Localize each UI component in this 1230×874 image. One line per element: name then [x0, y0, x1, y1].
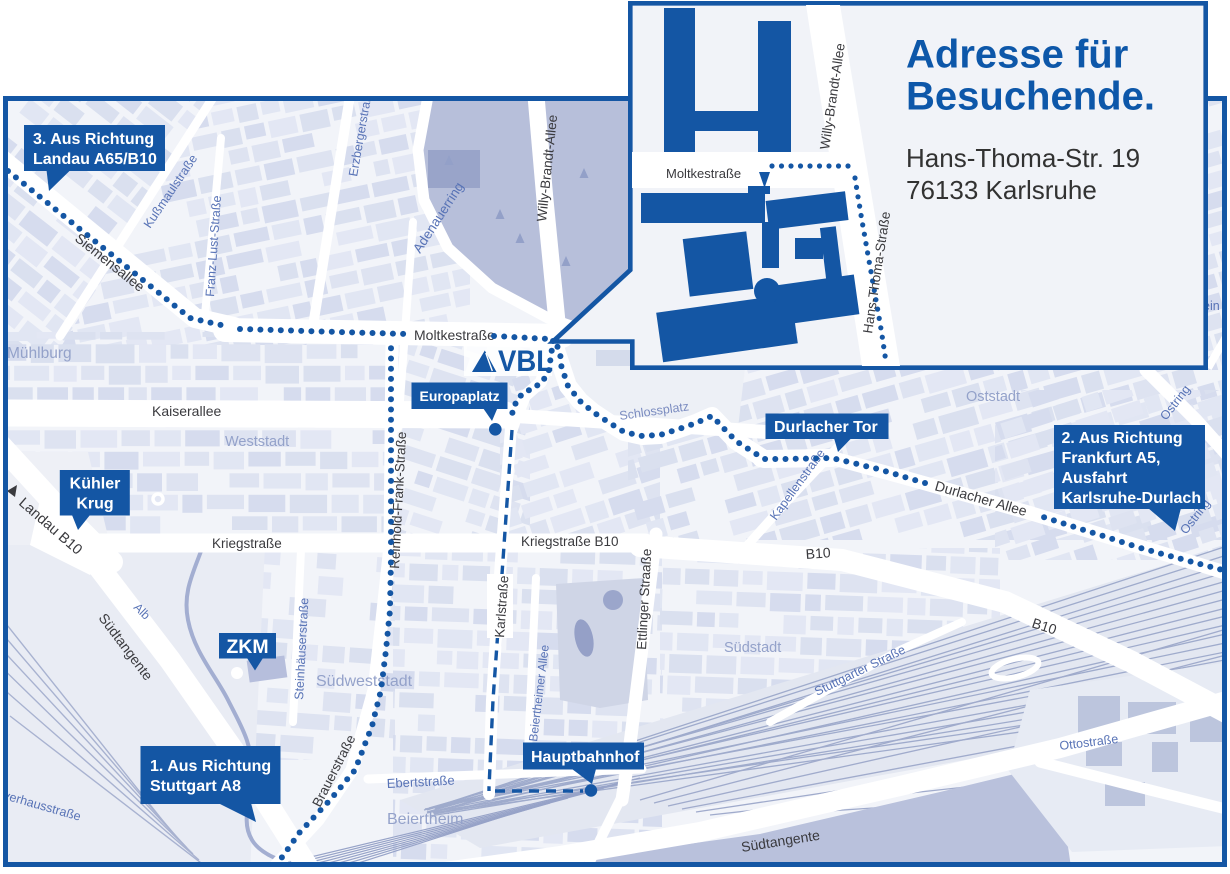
svg-text:Krug: Krug [76, 496, 113, 513]
svg-text:Beiertheim: Beiertheim [387, 811, 463, 828]
svg-text:Südstadt: Südstadt [724, 640, 781, 656]
svg-text:VBL: VBL [498, 345, 553, 378]
svg-text:Karlsruhe-Durlach: Karlsruhe-Durlach [1062, 490, 1202, 507]
svg-text:Mühlburg: Mühlburg [7, 345, 72, 362]
svg-text:Adresse für: Adresse für [906, 33, 1128, 77]
svg-text:Moltkestraße: Moltkestraße [666, 166, 741, 181]
svg-text:1. Aus Richtung: 1. Aus Richtung [150, 758, 271, 775]
svg-text:Landau A65/B10: Landau A65/B10 [33, 151, 157, 168]
svg-text:Stuttgart A8: Stuttgart A8 [150, 778, 241, 795]
svg-text:Moltkestraße: Moltkestraße [414, 327, 495, 343]
svg-text:Frankfurt A5,: Frankfurt A5, [1062, 450, 1161, 467]
svg-text:Durlacher Tor: Durlacher Tor [774, 419, 878, 436]
svg-text:Kriegstraße B10: Kriegstraße B10 [521, 534, 619, 549]
svg-text:B10: B10 [805, 544, 831, 562]
svg-text:Kaiserallee: Kaiserallee [152, 403, 221, 419]
svg-text:76133 Karlsruhe: 76133 Karlsruhe [906, 175, 1097, 205]
svg-text:2. Aus Richtung: 2. Aus Richtung [1062, 430, 1183, 447]
svg-text:3. Aus Richtung: 3. Aus Richtung [33, 131, 154, 148]
svg-text:Kühler: Kühler [70, 476, 121, 493]
svg-text:Besuchende.: Besuchende. [906, 75, 1155, 119]
svg-text:Hans-Thoma-Str. 19: Hans-Thoma-Str. 19 [906, 143, 1140, 173]
svg-text:Oststadt: Oststadt [966, 389, 1020, 405]
svg-text:Hauptbahnhof: Hauptbahnhof [531, 749, 640, 766]
svg-text:Weststadt: Weststadt [225, 434, 289, 450]
svg-text:Europaplatz: Europaplatz [420, 388, 500, 404]
svg-text:Kriegstraße: Kriegstraße [212, 536, 282, 551]
svg-text:ZKM: ZKM [226, 636, 268, 658]
svg-text:Südweststadt: Südweststadt [316, 673, 413, 690]
svg-text:Ausfahrt: Ausfahrt [1062, 470, 1128, 487]
